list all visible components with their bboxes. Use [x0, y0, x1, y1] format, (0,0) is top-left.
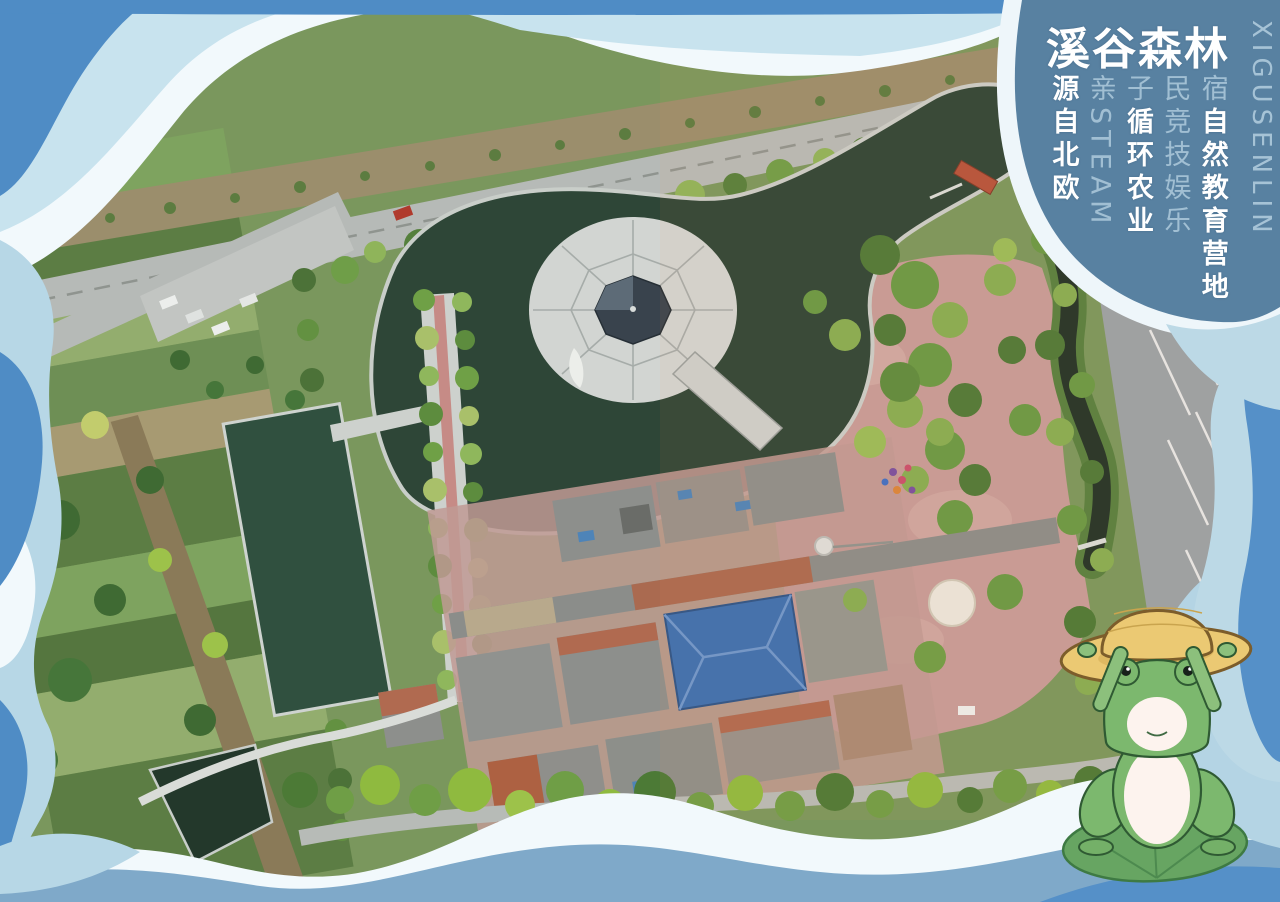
camp-title-latin: XIGUSENLIN	[1246, 20, 1276, 239]
tagline-columns: 源自北欧 亲STEAM 子循环农业 民竞技娱乐 宿自然教育营地	[1048, 74, 1226, 305]
brand-block: 溪谷森林 XIGUSENLIN 源自北欧 亲STEAM 子循环农业 民竞技娱乐 …	[1008, 0, 1280, 372]
poster-canvas: 溪谷森林 XIGUSENLIN 源自北欧 亲STEAM 子循环农业 民竞技娱乐 …	[0, 0, 1280, 902]
tagline-column-origin: 源自北欧	[1048, 74, 1076, 305]
camp-title: 溪谷森林	[1046, 13, 1230, 77]
tagline-column-agriculture: 子循环农业	[1123, 74, 1151, 305]
tagline-column-recreation: 民竞技娱乐	[1160, 74, 1188, 305]
tagline-column-education: 宿自然教育营地	[1197, 74, 1225, 305]
tagline-column-steam: 亲STEAM	[1085, 74, 1113, 305]
